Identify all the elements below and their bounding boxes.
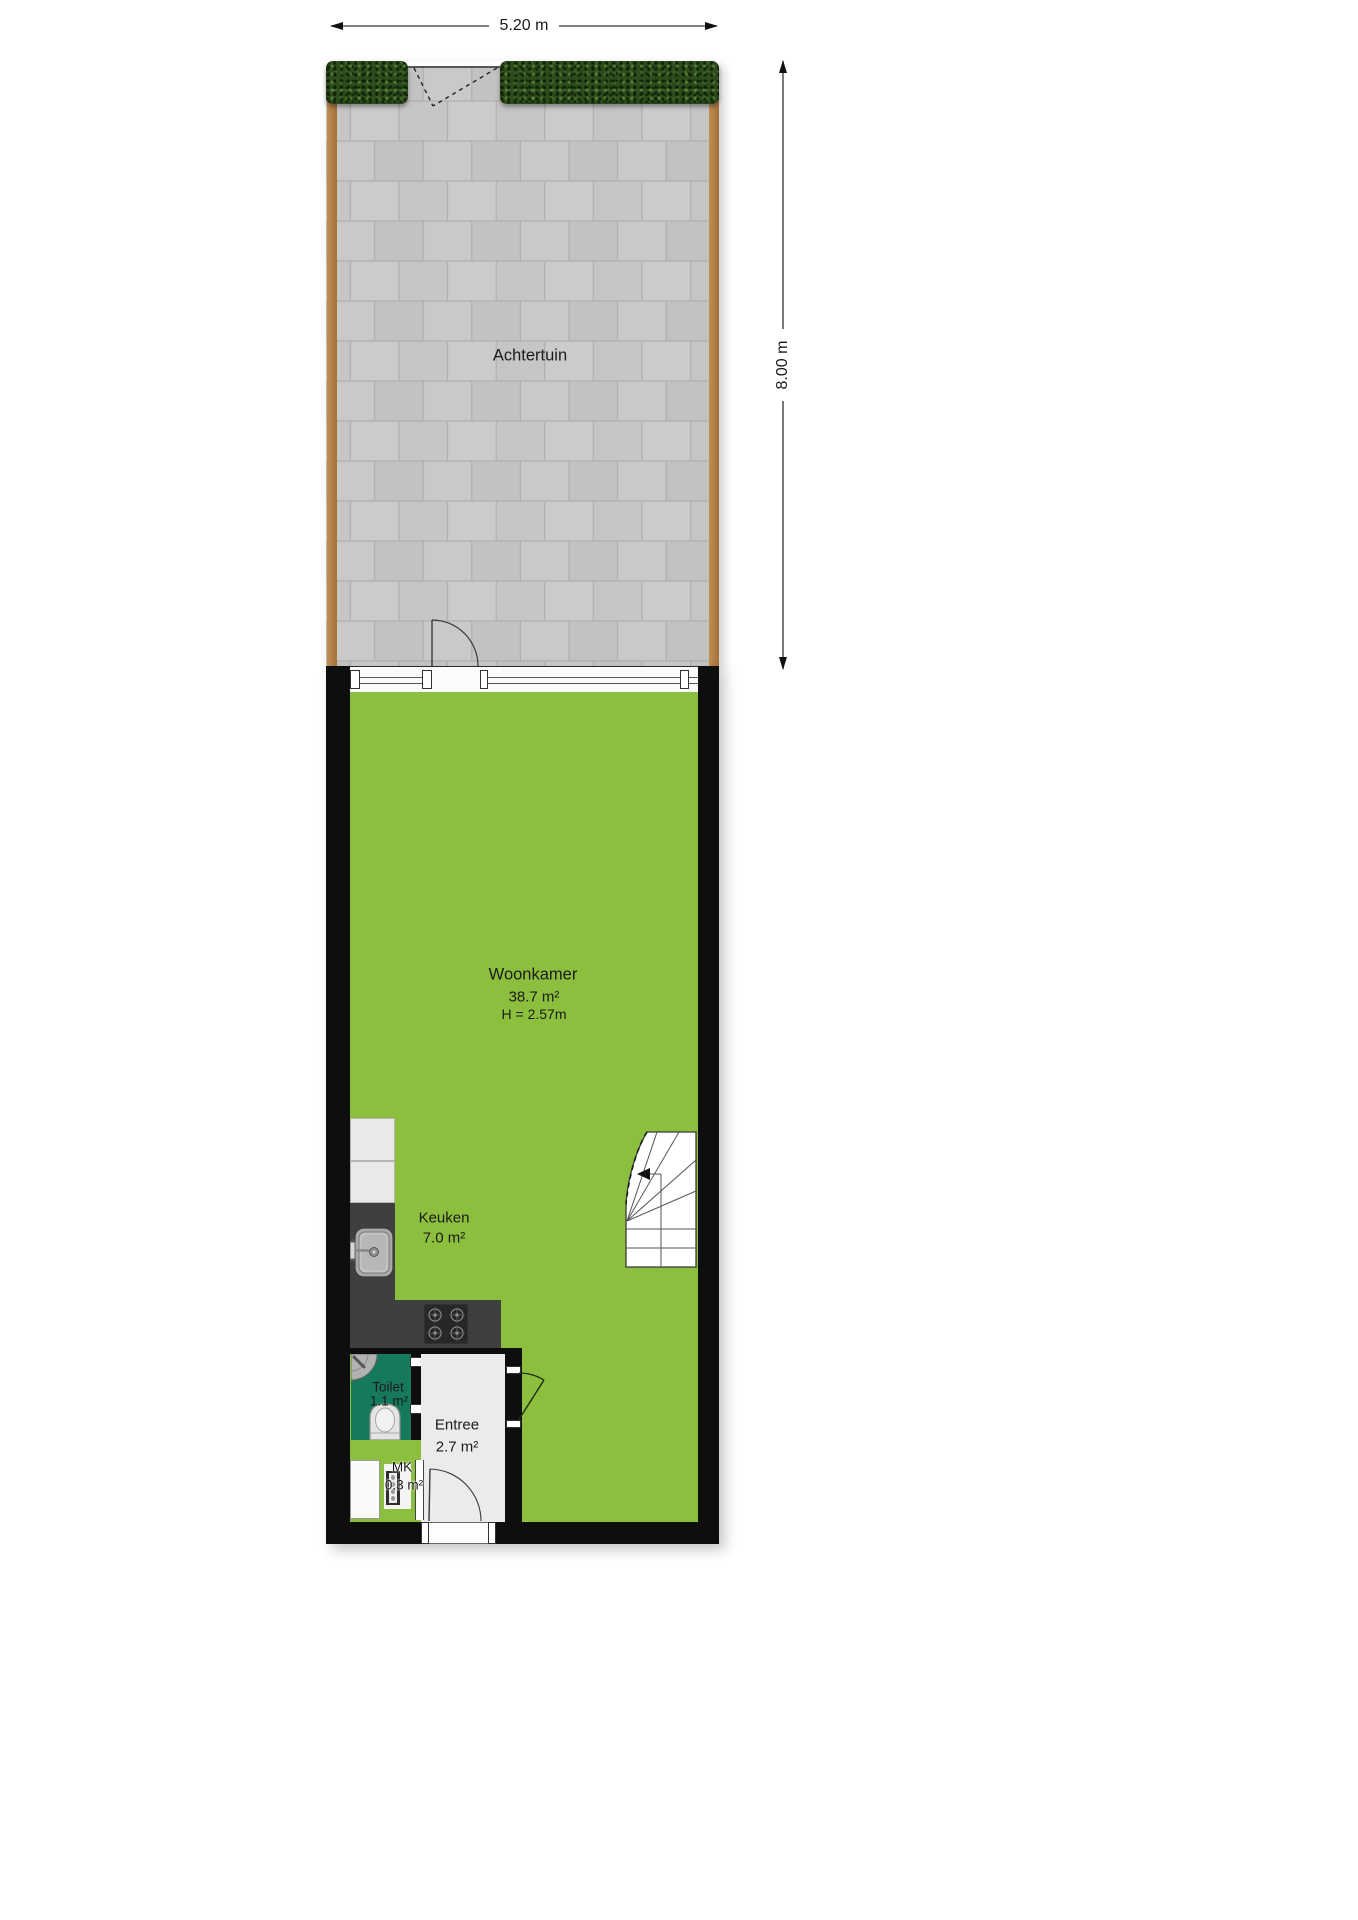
floor-plan-canvas: 5.20 m 8.00 m — [0, 0, 1358, 1920]
dimension-depth-label: 8.00 m — [774, 336, 792, 395]
stove-hob — [424, 1304, 468, 1344]
window-mullion — [422, 670, 432, 689]
living-room-area: 38.7 m² — [509, 989, 560, 1006]
dimension-depth: 8.00 m — [775, 59, 791, 671]
entree-label: Entree — [435, 1417, 479, 1434]
hedge-left — [326, 61, 408, 104]
living-room-door-swing — [505, 1354, 565, 1444]
living-room-height: H = 2.57m — [502, 1006, 567, 1022]
living-room-label: Woonkamer — [489, 966, 578, 985]
back-door-swing — [326, 611, 719, 666]
kitchen-cabinet — [350, 1118, 395, 1161]
staircase — [620, 1126, 700, 1278]
window-mullion — [680, 670, 689, 689]
meter-cupboard-label: MK — [392, 1460, 412, 1475]
garden-gate — [408, 61, 500, 121]
fence-left — [327, 70, 337, 666]
entree-area: 2.7 m² — [436, 1439, 479, 1456]
kitchen-area: 7.0 m² — [423, 1230, 466, 1247]
rear-window-glazing — [488, 677, 680, 684]
window-mullion — [350, 670, 360, 689]
window-mullion — [480, 670, 488, 689]
garden-area: Achtertuin — [326, 61, 719, 666]
door-frame-block — [421, 1522, 429, 1544]
dimension-width-label: 5.20 m — [495, 17, 554, 35]
hedge-right — [500, 61, 719, 104]
door-frame-block — [488, 1522, 496, 1544]
rear-window-band — [350, 666, 698, 692]
front-door-sill — [429, 1522, 488, 1544]
kitchen-label: Keuken — [419, 1210, 470, 1227]
garden-label: Achtertuin — [493, 347, 567, 366]
meter-cupboard-area: 0.3 m² — [385, 1478, 423, 1493]
toilet-area: 1.1 m² — [370, 1394, 408, 1409]
kitchen-sink — [350, 1222, 398, 1280]
kitchen-cabinet — [350, 1161, 395, 1203]
dimension-width: 5.20 m — [329, 18, 719, 34]
fence-right — [709, 70, 719, 666]
rear-window-glazing — [689, 677, 698, 684]
house-outline — [326, 666, 719, 1544]
toilet-label: Toilet — [372, 1380, 404, 1395]
facade-niche — [350, 1460, 380, 1519]
rear-window-glazing — [360, 677, 422, 684]
